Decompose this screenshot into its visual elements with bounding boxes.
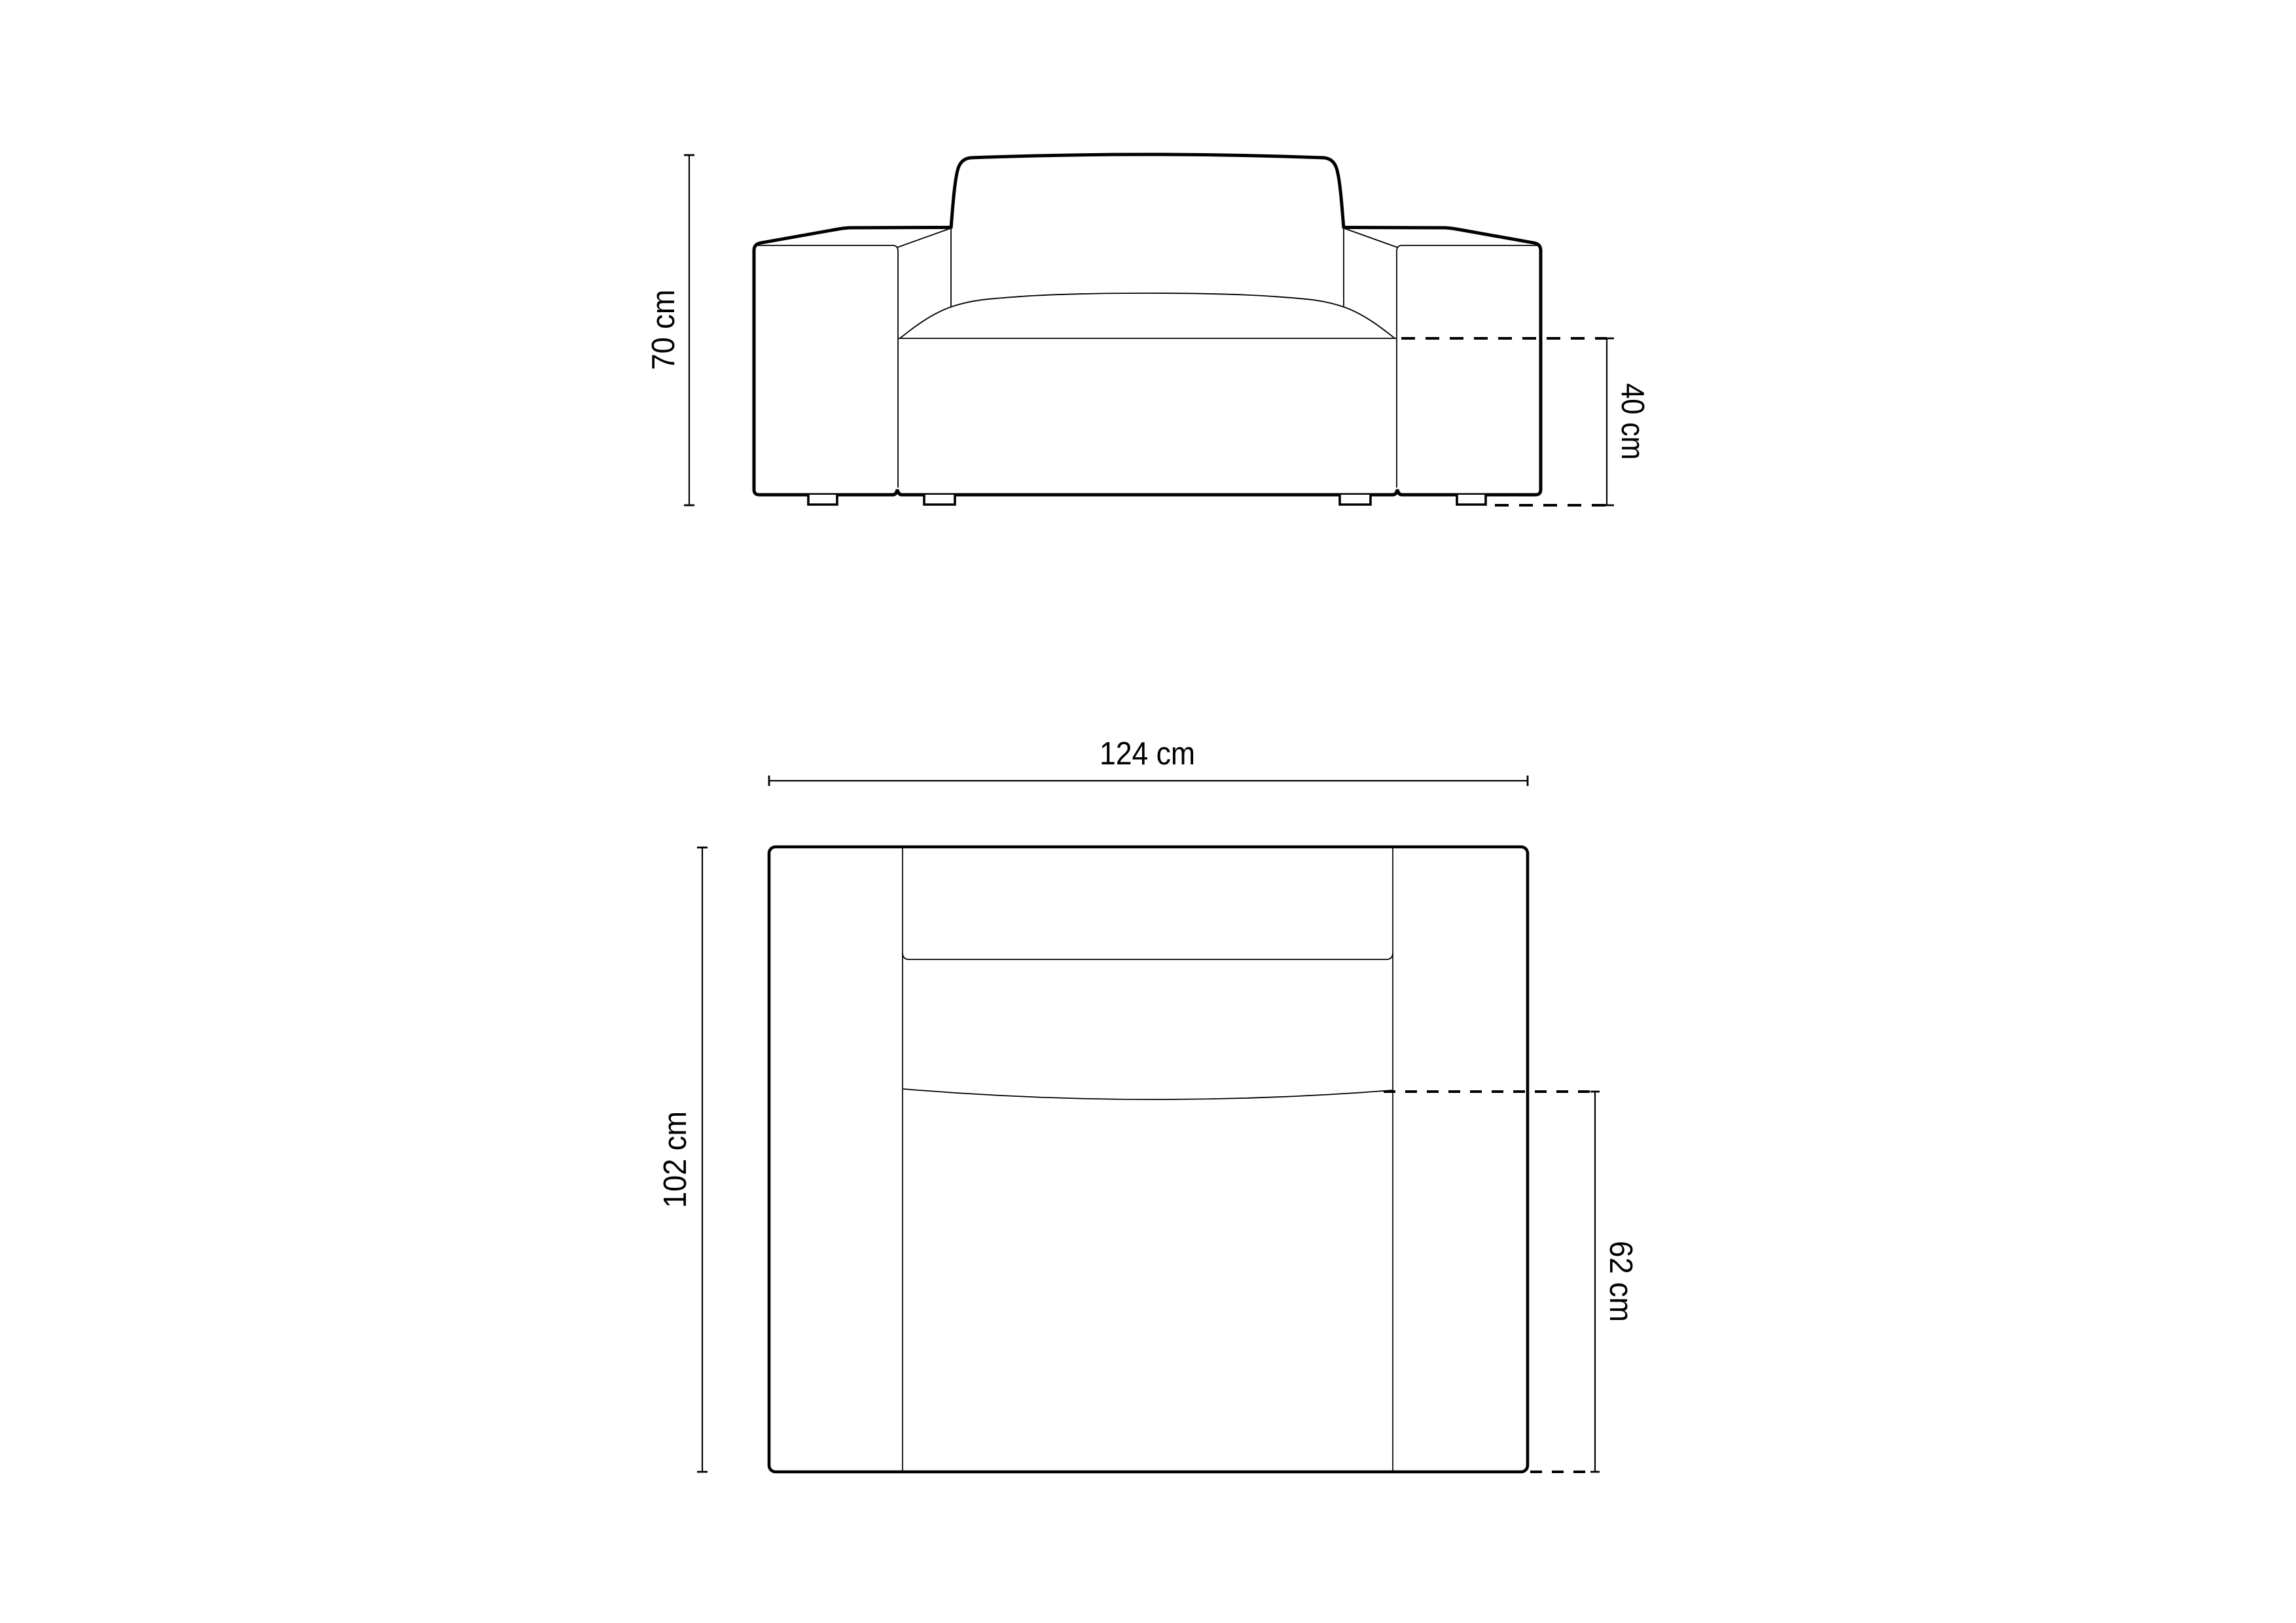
svg-text:40 cm: 40 cm [1615,383,1650,460]
svg-text:62 cm: 62 cm [1603,1241,1638,1322]
svg-text:70 cm: 70 cm [646,290,681,370]
svg-text:124 cm: 124 cm [1100,736,1195,772]
svg-text:102 cm: 102 cm [658,1111,693,1208]
